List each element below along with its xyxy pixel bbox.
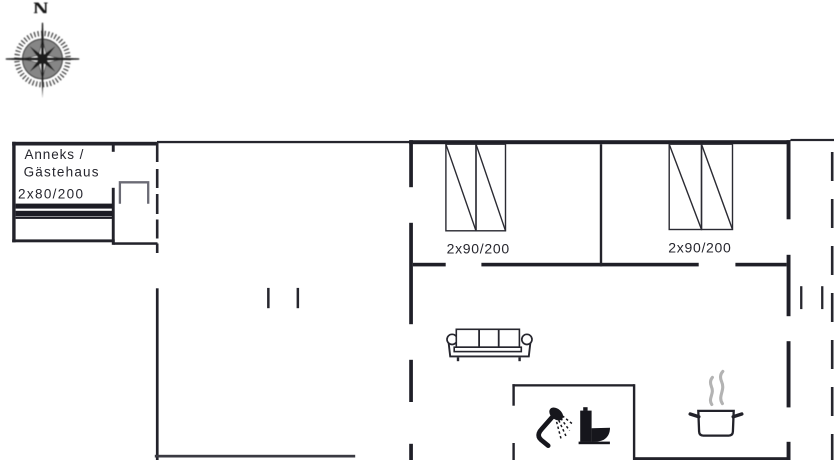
svg-text:2x90/200: 2x90/200 (447, 240, 510, 256)
svg-text:2x90/200: 2x90/200 (668, 240, 731, 256)
svg-text:Anneks /: Anneks / (25, 147, 85, 162)
svg-text:2x80/200: 2x80/200 (18, 186, 84, 201)
svg-text:Gästehaus: Gästehaus (24, 165, 100, 180)
